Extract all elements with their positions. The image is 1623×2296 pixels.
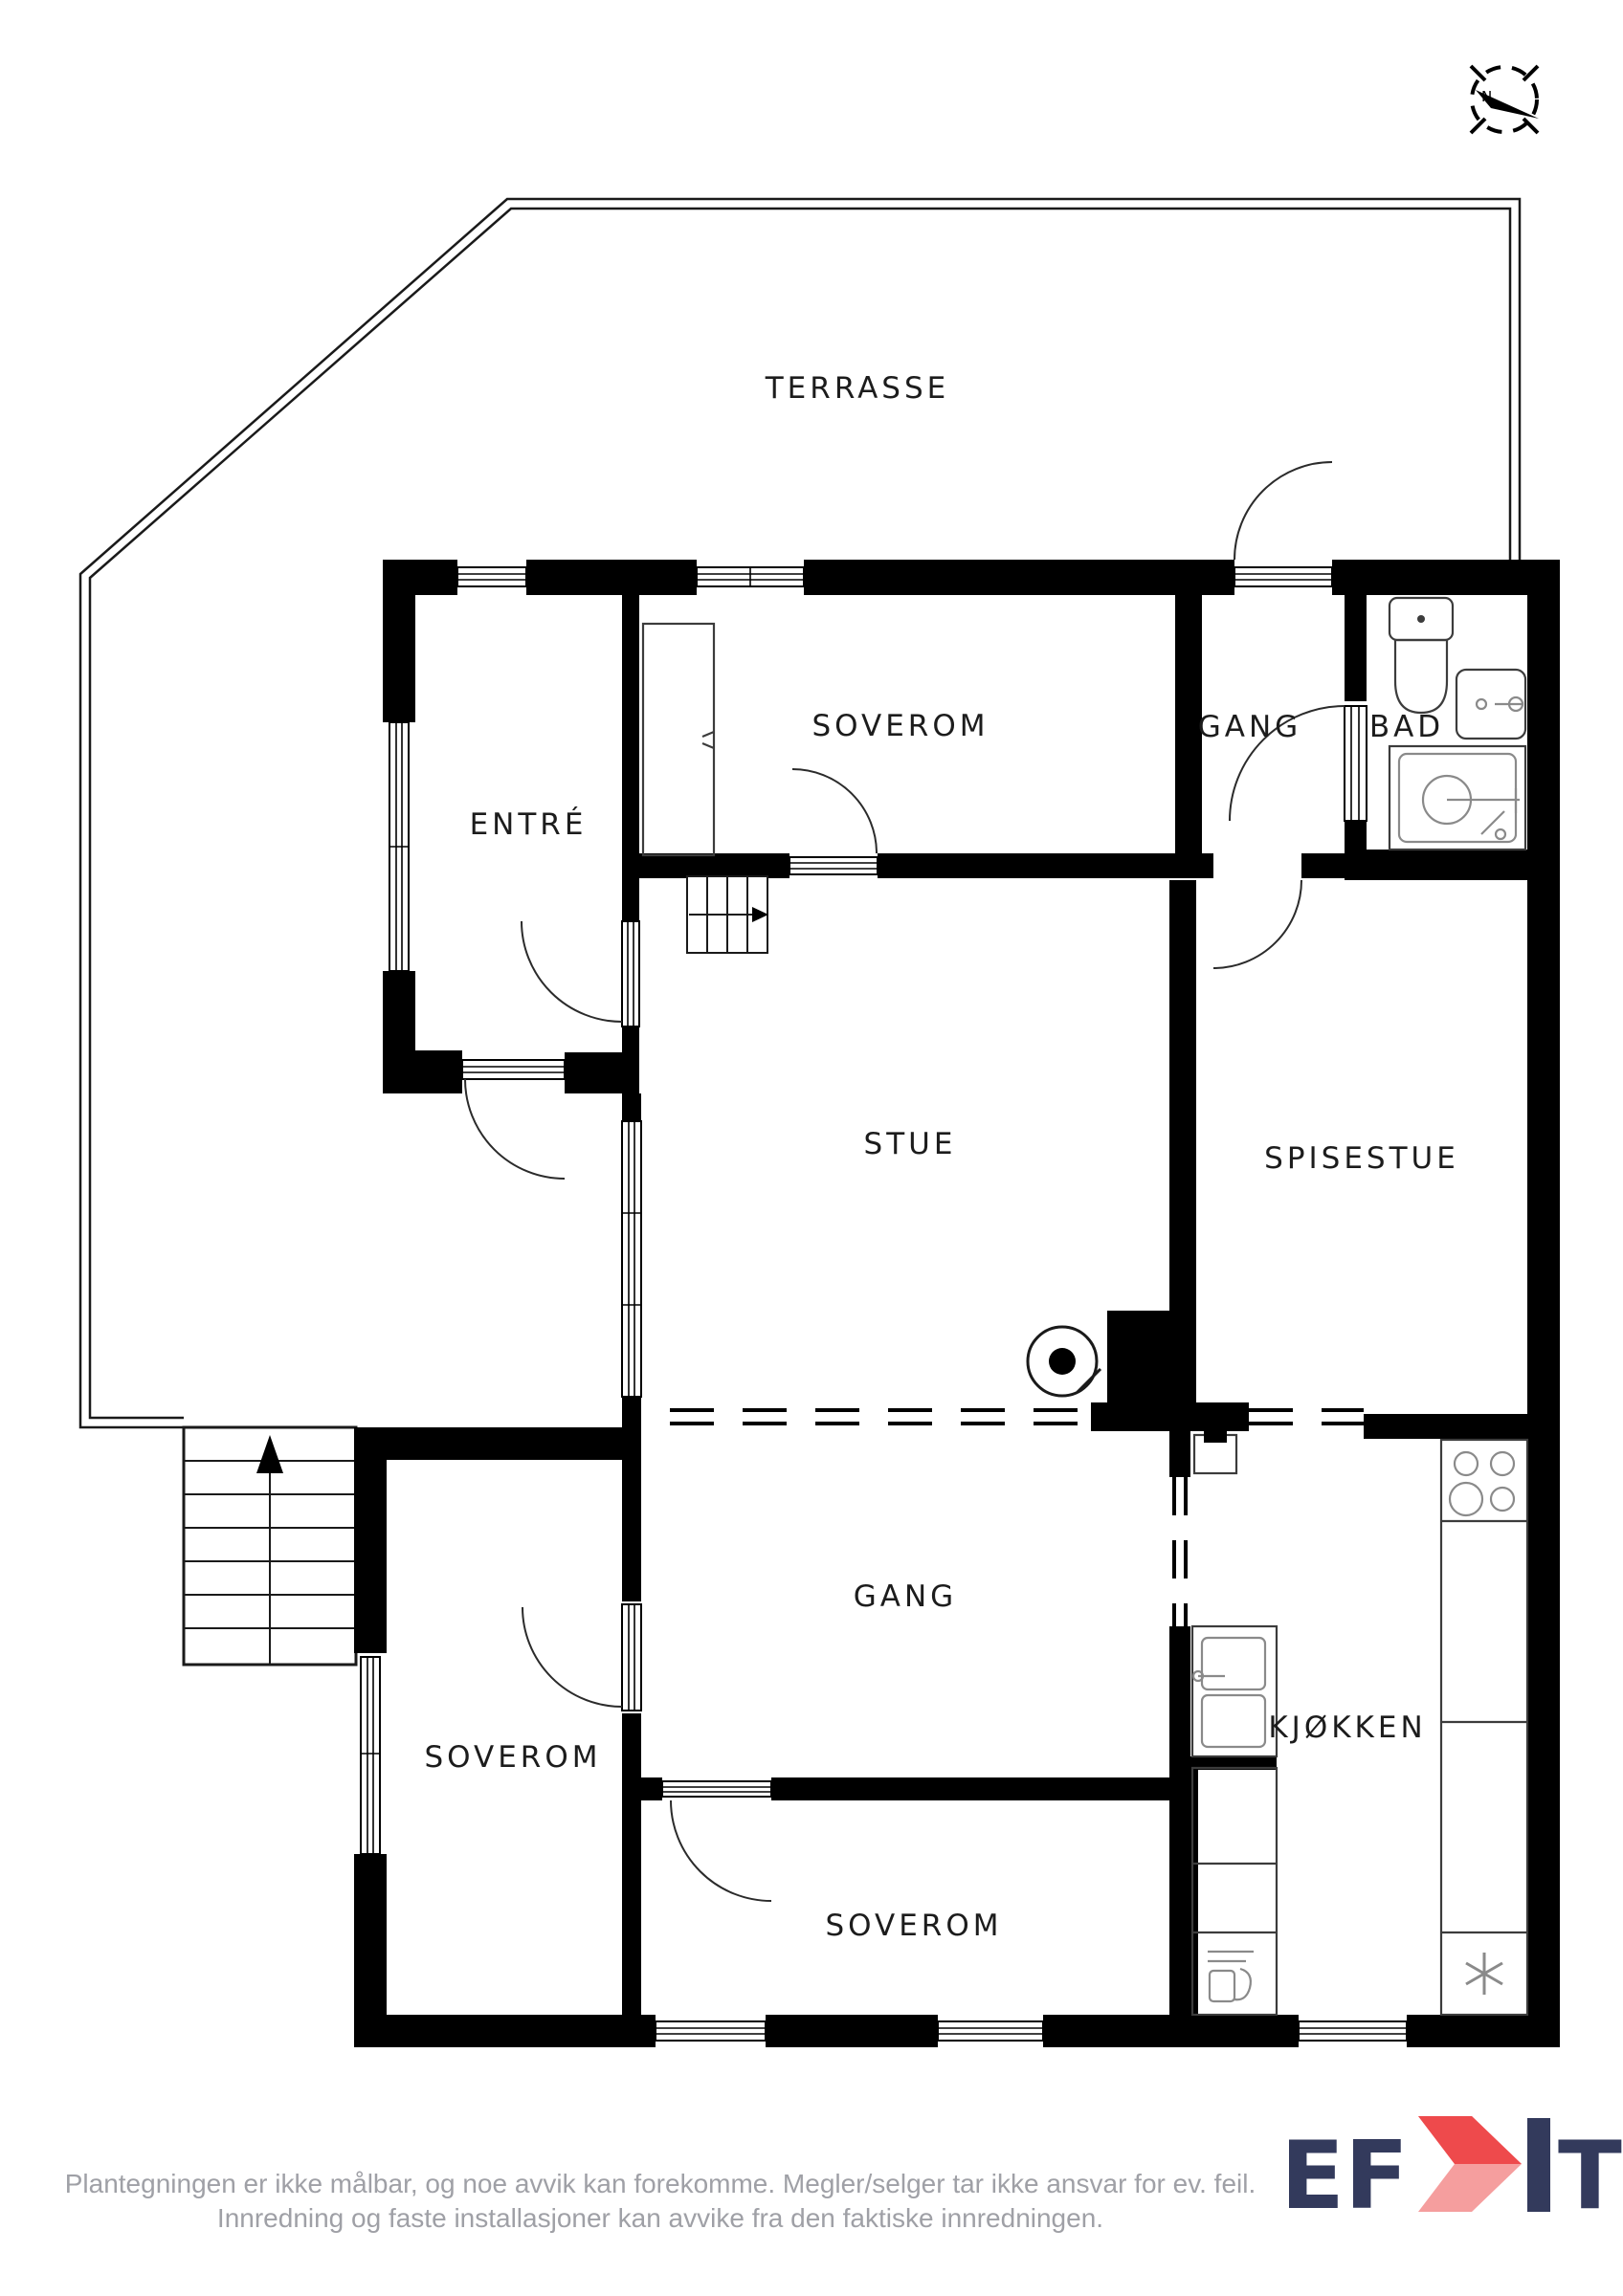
floor-plan-page: N xyxy=(0,0,1623,2296)
interior-stairs xyxy=(687,876,768,953)
room-label-soverom-top: SOVEROM xyxy=(811,709,989,743)
door-threshold xyxy=(1345,706,1367,821)
room-label-terrasse: TERRASSE xyxy=(765,371,950,406)
window xyxy=(697,567,804,586)
door-arc xyxy=(1234,462,1332,560)
closet xyxy=(643,624,714,855)
room-label-kjokken: KJØKKEN xyxy=(1268,1711,1426,1745)
logo-chevron-top-icon xyxy=(1418,2116,1522,2164)
door-arc xyxy=(522,921,622,1022)
efkt-logo: EF T xyxy=(1280,2116,1622,2231)
window xyxy=(938,2021,1043,2041)
room-label-gang-bottom: GANG xyxy=(854,1579,957,1614)
door-arc xyxy=(465,1079,565,1179)
room-labels: TERRASSE SOVEROM GANG BAD ENTRÉ STUE SPI… xyxy=(424,371,1458,1943)
room-label-gang-top: GANG xyxy=(1198,710,1301,744)
window xyxy=(389,722,409,971)
compass-north-label: N xyxy=(1481,88,1492,105)
door-arcs xyxy=(465,462,1345,1901)
footer: Plantegningen er ikke målbar, og noe avv… xyxy=(65,2116,1622,2233)
door-threshold xyxy=(1234,567,1332,586)
door-threshold xyxy=(622,1604,641,1711)
room-label-soverom-left: SOVEROM xyxy=(424,1740,601,1775)
door-arc xyxy=(522,1607,622,1707)
kitchen-cabinets xyxy=(1192,1768,1277,2015)
logo-text-ef: EF xyxy=(1280,2122,1409,2231)
open-wall-dashes xyxy=(670,1410,1364,1626)
door-threshold xyxy=(622,921,639,1027)
floor-plan-svg: N xyxy=(0,0,1623,2296)
door-threshold xyxy=(462,1060,565,1079)
kitchen-sink xyxy=(1192,1626,1277,1756)
walls xyxy=(354,560,1560,2047)
kitchen-counter xyxy=(1441,1440,1527,2015)
disclaimer-line-2: Innredning og faste installasjoner kan a… xyxy=(217,2203,1103,2233)
room-label-bad: BAD xyxy=(1369,710,1444,744)
freezer-snowflake-icon xyxy=(1466,1953,1502,1995)
stove-burners-icon xyxy=(1450,1452,1514,1515)
door-threshold xyxy=(662,1781,771,1797)
logo-bar xyxy=(1527,2118,1550,2212)
disclaimer-line-1: Plantegningen er ikke målbar, og noe avv… xyxy=(65,2169,1256,2198)
window xyxy=(1299,2021,1407,2041)
dishwasher-icon xyxy=(1208,1952,1254,2001)
wood-stove xyxy=(1028,1327,1101,1396)
door-threshold xyxy=(789,857,878,874)
room-label-entre: ENTRÉ xyxy=(470,807,588,842)
door-arc xyxy=(1213,880,1301,968)
water-heater xyxy=(1194,1431,1236,1473)
logo-text-t: T xyxy=(1558,2122,1622,2231)
window xyxy=(622,1121,641,1397)
door-arc xyxy=(671,1800,771,1901)
windows xyxy=(361,567,1407,2041)
exterior-stairs xyxy=(184,1427,356,1665)
bathroom-sink xyxy=(1456,670,1525,739)
window xyxy=(457,567,526,586)
toilet xyxy=(1390,598,1453,713)
shower xyxy=(1390,746,1525,850)
room-label-stue: STUE xyxy=(864,1127,957,1161)
fixtures xyxy=(643,598,1527,2015)
room-label-spisestue: SPISESTUE xyxy=(1264,1141,1459,1176)
window xyxy=(656,2021,766,2041)
window xyxy=(361,1657,380,1854)
room-label-soverom-bottom: SOVEROM xyxy=(825,1909,1002,1943)
door-arc xyxy=(792,769,877,853)
compass-icon: N xyxy=(1471,66,1539,133)
